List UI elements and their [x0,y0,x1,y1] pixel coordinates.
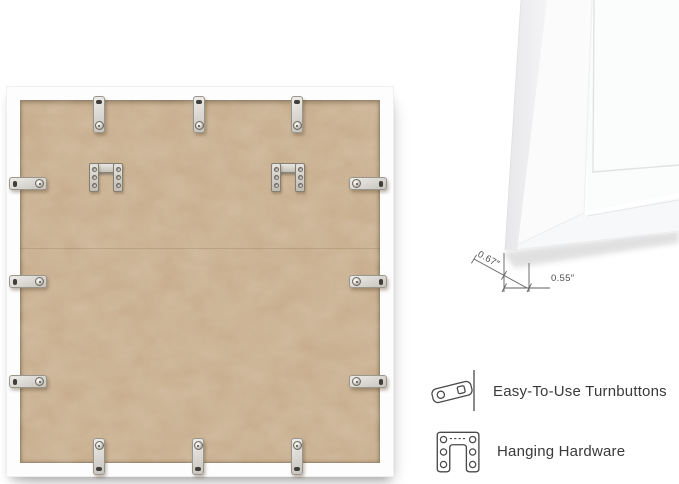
turnbutton-screw [293,441,302,450]
turnbutton [9,177,47,190]
hanger-plate [271,163,281,192]
hanger-hole [274,175,279,180]
feature-hanging-hardware: Hanging Hardware [430,424,625,478]
sawtooth-teeth [281,172,295,176]
hanger-hole [274,183,279,188]
mat-area [584,0,679,215]
turnbutton-slot [294,467,300,471]
hanger-hole [298,175,303,180]
hanger-hole [274,167,279,172]
frame-back-photo [6,86,394,477]
turnbutton [93,438,105,475]
turnbutton-screw [293,121,302,130]
face-width-dimension-label: 0.55″ [551,273,575,284]
hanger-hole [92,175,97,180]
turnbutton-slot [196,100,202,104]
turnbutton-slot [13,181,17,187]
turnbutton-slot [13,379,17,385]
turnbutton [349,375,387,388]
frame-corner-photo: 0.67″ 0.55″ [430,0,679,300]
feature-label-hanging-hardware: Hanging Hardware [497,443,625,460]
turnbutton-screw [95,441,104,450]
turnbutton [291,96,303,133]
sawtooth-hanger [271,163,305,192]
hanger-plate [295,163,305,192]
turnbutton-screw [35,377,44,386]
turnbutton-screw [352,179,361,188]
turnbutton-slot [379,181,383,187]
turnbutton-slot [13,279,17,285]
product-image: 0.67″ 0.55″ Easy-To-Use Turnbuttons Hang… [0,0,679,484]
sawtooth-hanger [89,163,123,192]
hanger-hole [92,167,97,172]
mdf-texture [20,100,380,463]
turnbutton [349,177,387,190]
turnbutton-screw [352,277,361,286]
turnbutton-screw [95,121,104,130]
turnbutton [193,96,205,133]
turnbutton-slot [96,100,102,104]
turnbutton-slot [96,467,102,471]
turnbutton-icon [430,368,478,414]
hanger-hole [92,183,97,188]
turnbutton-slot [379,379,383,385]
feature-label-turnbuttons: Easy-To-Use Turnbuttons [493,383,667,400]
turnbutton-screw [194,441,203,450]
hanger-hole [298,183,303,188]
turnbutton [93,96,105,133]
turnbutton [192,438,204,475]
turnbutton-slot [379,279,383,285]
turnbutton [291,438,303,475]
turnbutton [9,375,47,388]
mdf-panel-seam [20,248,380,249]
turnbutton-screw [35,277,44,286]
hanger-plate [89,163,99,192]
turnbutton-slot [195,467,201,471]
hanger-hole [116,167,121,172]
sawtooth-teeth [99,172,113,176]
feature-turnbuttons: Easy-To-Use Turnbuttons [430,368,667,414]
turnbutton-screw [35,179,44,188]
mdf-backing-board [20,100,380,463]
turnbutton-screw [352,377,361,386]
turnbutton [9,275,47,288]
hanger-plate [113,163,123,192]
turnbutton-slot [294,100,300,104]
turnbutton [349,275,387,288]
hanger-hole [298,167,303,172]
hanger-hole [116,183,121,188]
hanging-hardware-icon [430,427,482,475]
turnbutton-screw [195,121,204,130]
hanger-hole [116,175,121,180]
